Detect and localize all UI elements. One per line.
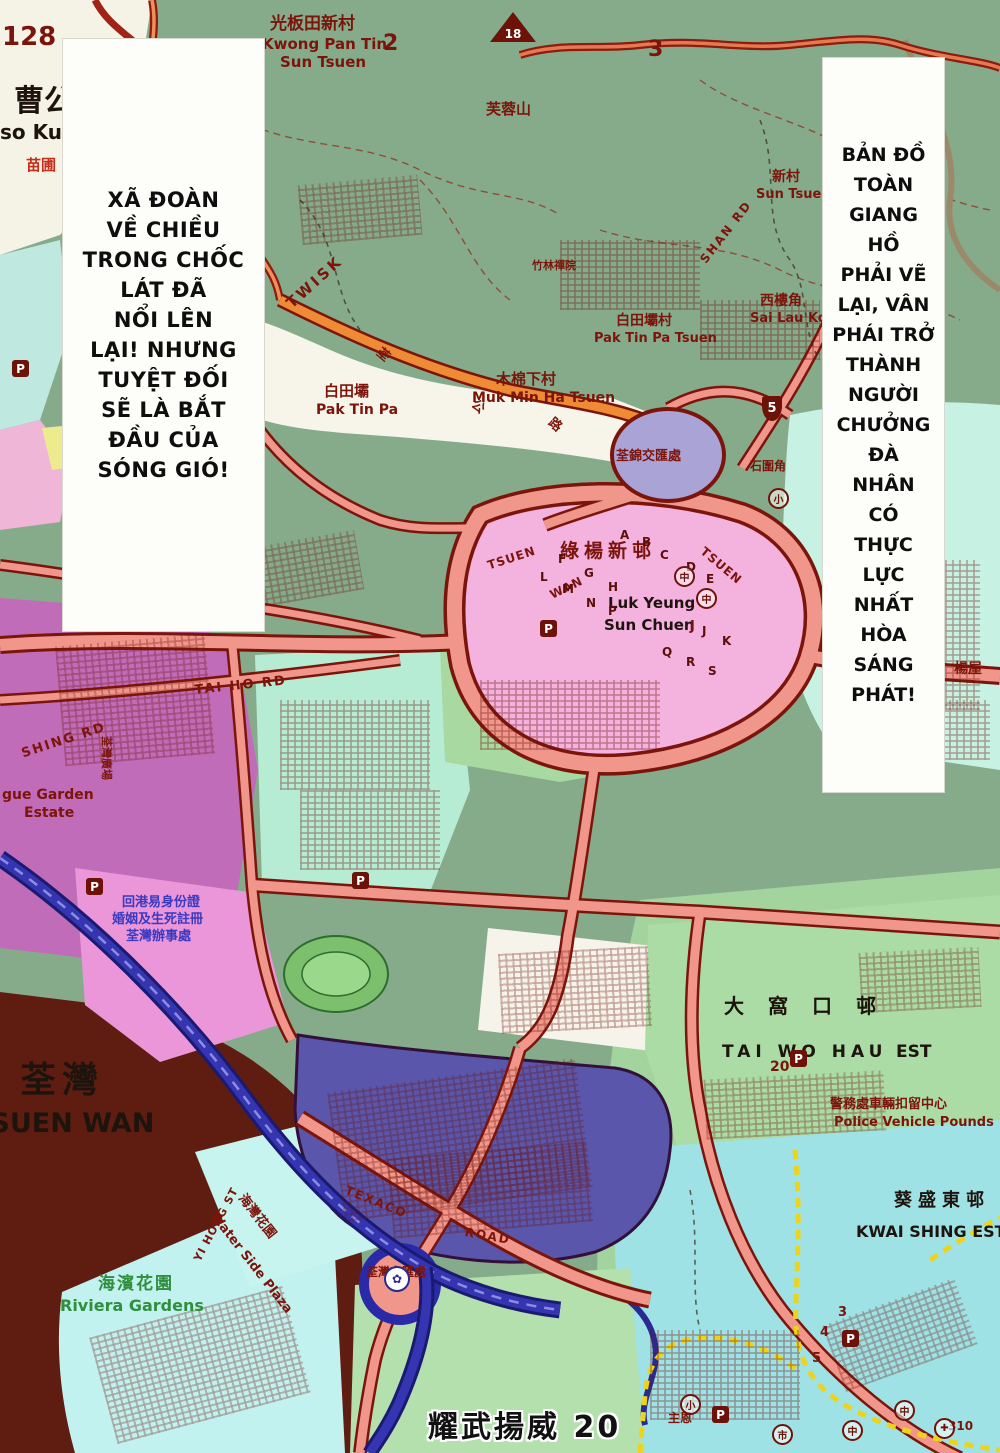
label-kwai-shing-zh: 葵盛東邨 — [894, 1192, 990, 1211]
map-texture — [300, 790, 440, 870]
speech-balloon-right: BẢN ĐỒ TOÀN GIANG HỒ PHẢI VẼ LẠI, VÂN PH… — [822, 57, 945, 793]
circle-icon: 中 — [842, 1420, 863, 1441]
map-grid-letter: S — [708, 664, 717, 678]
map-texture — [700, 300, 820, 360]
map-grid-letter: H — [608, 580, 618, 594]
map-grid-letter: R — [686, 655, 695, 669]
label-riviera-zh: 海濱花園 — [98, 1276, 174, 1294]
label-kwong-pan-tin-en2: Sun Tsuen — [280, 55, 366, 71]
map-grid-letter: Q — [662, 645, 672, 659]
speech-text-left: XÃ ĐOÀN VỀ CHIỀU TRONG CHỐC LÁT ĐÃ NỔI L… — [83, 185, 245, 485]
map-label: 3 — [838, 1306, 847, 1320]
map-texture — [498, 946, 652, 1034]
map-grid-letter: C — [660, 548, 669, 562]
map-grid-letter: L — [540, 570, 548, 584]
label-police-pounds-en: Police Vehicle Pounds — [834, 1116, 994, 1130]
map-grid-letter: E — [706, 572, 714, 586]
label-muk-min-ha-en: Muk Min Ha Tsuen — [472, 391, 615, 406]
map-label: 4 — [820, 1326, 829, 1340]
circle-icon: 小 — [680, 1394, 701, 1415]
label-riviera-en: Riviera Gardens — [60, 1298, 204, 1315]
label-registry-office: 回港易身份證 — [122, 896, 200, 910]
label-tsuen-wan-en: TSUEN WAN — [0, 1110, 154, 1138]
map-label: 荃灣廣場 — [100, 736, 112, 780]
label-muk-min-ha-zh: 木棉下村 — [496, 372, 556, 388]
circle-icon: ✚ — [934, 1418, 955, 1439]
label-pak-tin-pa-tsuen-zh: 白田壩村 — [616, 314, 672, 329]
label-sun-tsuen-en: Sun Tsuen — [756, 188, 831, 202]
map-label: Sun Chuen — [604, 618, 695, 634]
grid-number-2: 2 — [383, 32, 398, 55]
label-tsuen-wan-zh: 荃灣 — [20, 1062, 104, 1100]
map-grid-letter: N — [586, 596, 596, 610]
map-grid-letter: K — [722, 634, 731, 648]
label-tsuen-kam-interchange: 荃錦交匯處 — [616, 450, 681, 464]
label-tai-wo-hau-zh: 大窩口邨 — [724, 996, 900, 1017]
chapter-title-page-number: 耀武揚威 20 — [428, 1402, 621, 1446]
map-label: gue Garden — [2, 788, 94, 803]
map-label: Estate — [24, 806, 74, 821]
map-grid-letter: M — [562, 582, 574, 596]
circle-icon: 中 — [894, 1400, 915, 1421]
label-nursery: 苗圃 — [26, 158, 56, 174]
roundabout-icon: ✿ — [384, 1266, 410, 1292]
label-fu-yung-shan: 芙蓉山 — [486, 102, 531, 118]
circle-icon: 市 — [772, 1424, 793, 1445]
circle-icon: 中 — [674, 566, 695, 587]
circle-icon: 中 — [696, 588, 717, 609]
parking-icon: P — [12, 360, 29, 377]
label-kwai-shing-en: KWAI SHING EST — [856, 1224, 1000, 1241]
map-grid-letter: P — [608, 604, 617, 618]
map-label: 荃灣辦事處 — [126, 930, 191, 944]
label-sun-tsuen-zh: 新村 — [772, 170, 800, 185]
parking-icon: P — [712, 1406, 729, 1423]
parking-icon: P — [352, 872, 369, 889]
label-kwong-pan-tin-en: Kwong Pan Tin — [262, 37, 387, 53]
speech-text-right: BẢN ĐỒ TOÀN GIANG HỒ PHẢI VẼ LẠI, VÂN PH… — [832, 140, 934, 710]
circle-icon: 小 — [768, 488, 789, 509]
label-police-pounds-zh: 警務處車輛扣留中心 — [830, 1098, 947, 1112]
parking-icon: P — [86, 878, 103, 895]
map-grid-letter: B — [642, 535, 651, 549]
map-texture — [55, 634, 215, 767]
map-texture — [298, 175, 423, 245]
label-pak-tin-pa-tsuen-en: Pak Tin Pa Tsuen — [594, 332, 717, 346]
label-pak-tin-pa-zh: 白田壩 — [324, 384, 369, 400]
map-label: J — [690, 620, 695, 634]
map-texture — [280, 700, 430, 790]
map-label: EST — [896, 1044, 931, 1062]
grid-number-128: 128 — [2, 24, 56, 51]
map-label: 婚姻及生死註冊 — [112, 913, 203, 927]
speech-balloon-left: XÃ ĐOÀN VỀ CHIỀU TRONG CHỐC LÁT ĐÃ NỔI L… — [62, 38, 265, 632]
label-luk-yeung-en: Luk Yeung — [608, 596, 695, 612]
manga-page: 128曹公so Kung苗圃光板田新村Kwong Pan TinSun Tsue… — [0, 0, 1000, 1453]
label-kwong-pan-tin-zh: 光板田新村 — [270, 16, 355, 34]
map-grid-letter: F — [558, 552, 566, 566]
map-texture — [560, 240, 700, 310]
parking-icon: P — [842, 1330, 859, 1347]
label-pak-tin-pa-en: Pak Tin Pa — [316, 403, 398, 418]
parking-icon: P — [540, 620, 557, 637]
grid-number-3: 3 — [648, 38, 663, 61]
map-grid-letter: A — [620, 528, 629, 542]
map-label: 20 — [770, 1060, 789, 1075]
map-label: 竹林禪院 — [532, 260, 576, 272]
map-label: 5 — [812, 1352, 821, 1366]
label-sai-lau-kok-zh: 西樓角 — [760, 294, 802, 309]
map-grid-letter: G — [584, 566, 594, 580]
map-grid-letter: J — [702, 624, 706, 638]
map-label: 楊屋 — [954, 662, 982, 677]
map-texture — [480, 680, 660, 750]
map-label: 石圍角 — [750, 460, 786, 473]
parking-icon: P — [790, 1050, 807, 1067]
